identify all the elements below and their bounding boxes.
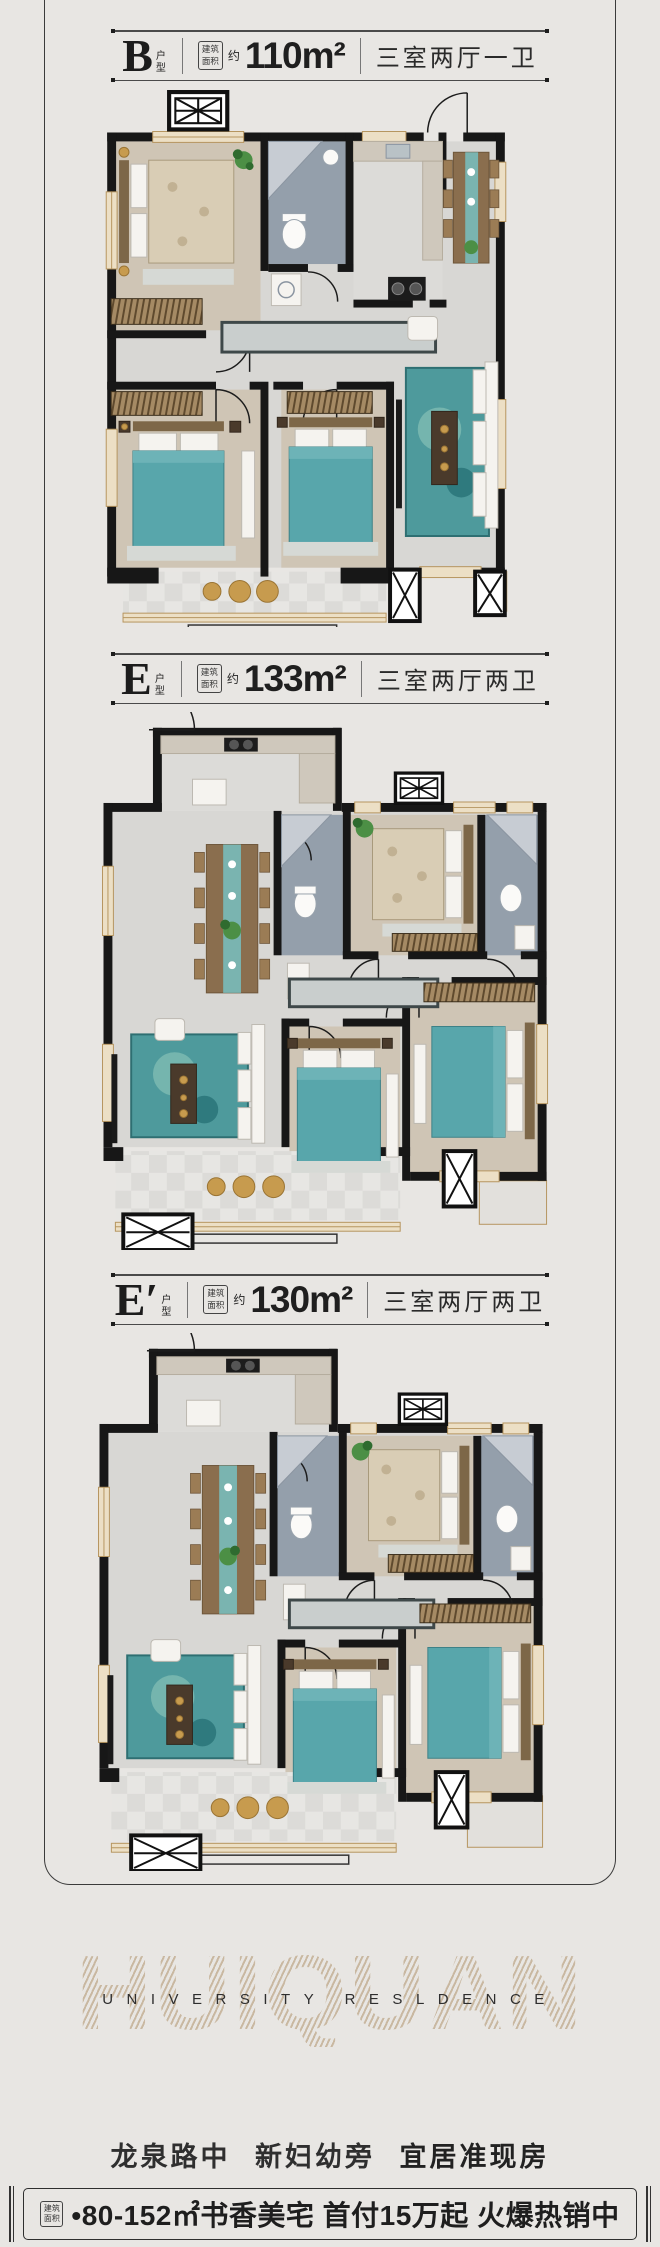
- ac-unit-icon: [390, 570, 420, 621]
- plan-type-letter: E: [121, 660, 152, 698]
- headline-part: 新妇幼旁: [255, 2142, 375, 2172]
- ac-unit-icon: [169, 92, 227, 129]
- wardrobe: [111, 299, 202, 325]
- area-tag-box: 建筑面积: [203, 1285, 228, 1313]
- header-rule-top: [113, 653, 547, 655]
- floorplan-e-drawing: [93, 712, 563, 1250]
- area-tag-box: 建筑面积: [197, 664, 222, 692]
- plan-e-prime-header: E′ 户型 建筑面积 约 130m² 三室两厅两卫: [113, 1274, 547, 1325]
- area-approx: 约: [227, 670, 239, 687]
- plan-section-e: E 户型 建筑面积 约 133m² 三室两厅两卫: [45, 653, 615, 1250]
- area-tag-box: 建筑面积: [40, 2201, 63, 2228]
- brand-block: HUIQUAN UNIVERSITY RESLDENCE: [0, 1939, 660, 2107]
- header-divider: [361, 661, 362, 697]
- rooms-label: 三室两厅两卫: [377, 661, 539, 696]
- poster-page: B 户型 建筑面积 约 110m² 三室两厅一卫: [0, 0, 660, 2247]
- floorplan-b-drawing: [91, 87, 521, 627]
- plan-type-letter: E′: [115, 1281, 159, 1319]
- banner-bracket-left: [9, 2186, 14, 2242]
- area-value: 130m²: [250, 1279, 352, 1321]
- header-divider: [367, 1282, 368, 1318]
- headline-part: 宜居准现房: [400, 2142, 550, 2172]
- entry-door: [428, 93, 468, 133]
- rooms-label: 三室两厅一卫: [376, 38, 538, 73]
- area-value: 110m²: [245, 35, 345, 77]
- header-divider: [360, 38, 361, 74]
- header-rule-bottom: [113, 80, 547, 82]
- header-divider: [182, 38, 183, 74]
- ac-unit-icon: [399, 1394, 446, 1424]
- plan-type: E 户型: [121, 660, 166, 698]
- area-tag-box: 建筑面积: [198, 41, 223, 69]
- hall-runner: [289, 1600, 433, 1628]
- plan-type-label: 户型: [155, 674, 166, 698]
- hall-runner: [289, 979, 437, 1007]
- living-room: [111, 1019, 264, 1144]
- plan-area: 建筑面积 约 130m²: [203, 1279, 352, 1321]
- header-divider: [181, 661, 182, 697]
- brand-subtitle: UNIVERSITY RESLDENCE: [0, 1991, 660, 2008]
- area-value: 133m²: [244, 658, 346, 700]
- headline-part: 龙泉路中: [110, 2142, 230, 2172]
- promo-banner-row: 建筑面积 •80-152㎡书香美宅 首付15万起 火爆热销中: [0, 2186, 660, 2242]
- ac-unit-icon: [395, 773, 442, 803]
- plan-type: E′ 户型: [115, 1281, 173, 1319]
- area-approx: 约: [233, 1291, 245, 1308]
- banner-bracket-right: [646, 2186, 651, 2242]
- header-rule-bottom: [113, 703, 547, 705]
- ac-unit-icon: [123, 1214, 192, 1250]
- ac-unit-icon: [444, 1151, 476, 1206]
- header-rule-bottom: [113, 1324, 547, 1326]
- header-divider: [187, 1282, 188, 1318]
- ac-unit-icon: [436, 1772, 468, 1827]
- plan-type-letter: B: [122, 37, 153, 75]
- promo-banner-text: •80-152㎡书香美宅 首付15万起 火爆热销中: [71, 2194, 619, 2234]
- plan-b-header: B 户型 建筑面积 约 110m² 三室两厅一卫: [113, 0, 547, 81]
- rooms-label: 三室两厅两卫: [383, 1282, 545, 1317]
- promo-banner: 建筑面积 •80-152㎡书香美宅 首付15万起 火爆热销中: [23, 2188, 636, 2240]
- plan-type-label: 户型: [161, 1295, 172, 1319]
- entry-door: [147, 1333, 194, 1351]
- plan-type: B 户型: [122, 37, 167, 75]
- balcony: [207, 1176, 284, 1198]
- ac-unit-icon: [475, 572, 505, 616]
- plan-section-e-prime: E′ 户型 建筑面积 约 130m² 三室两厅两卫: [45, 1274, 615, 1871]
- balcony: [203, 581, 278, 603]
- header-rule-top: [113, 30, 547, 32]
- floorplan-card: B 户型 建筑面积 约 110m² 三室两厅一卫: [44, 0, 616, 1885]
- header-rule-top: [113, 1274, 547, 1276]
- headline: 龙泉路中 新妇幼旁 宜居准现房: [0, 2135, 660, 2174]
- entry-door: [149, 712, 194, 730]
- plan-area: 建筑面积 约 110m²: [198, 35, 345, 77]
- plan-section-b: B 户型 建筑面积 约 110m² 三室两厅一卫: [45, 0, 615, 627]
- hall-runner: [222, 322, 436, 352]
- plan-type-label: 户型: [156, 51, 167, 75]
- balcony: [211, 1797, 288, 1819]
- area-approx: 约: [228, 47, 240, 64]
- living-room: [107, 1640, 260, 1765]
- ac-unit-icon: [131, 1835, 200, 1871]
- floorplan-e-prime-drawing: [89, 1333, 559, 1871]
- plan-area: 建筑面积 约 133m²: [197, 658, 346, 700]
- plan-e-header: E 户型 建筑面积 约 133m² 三室两厅两卫: [113, 653, 547, 704]
